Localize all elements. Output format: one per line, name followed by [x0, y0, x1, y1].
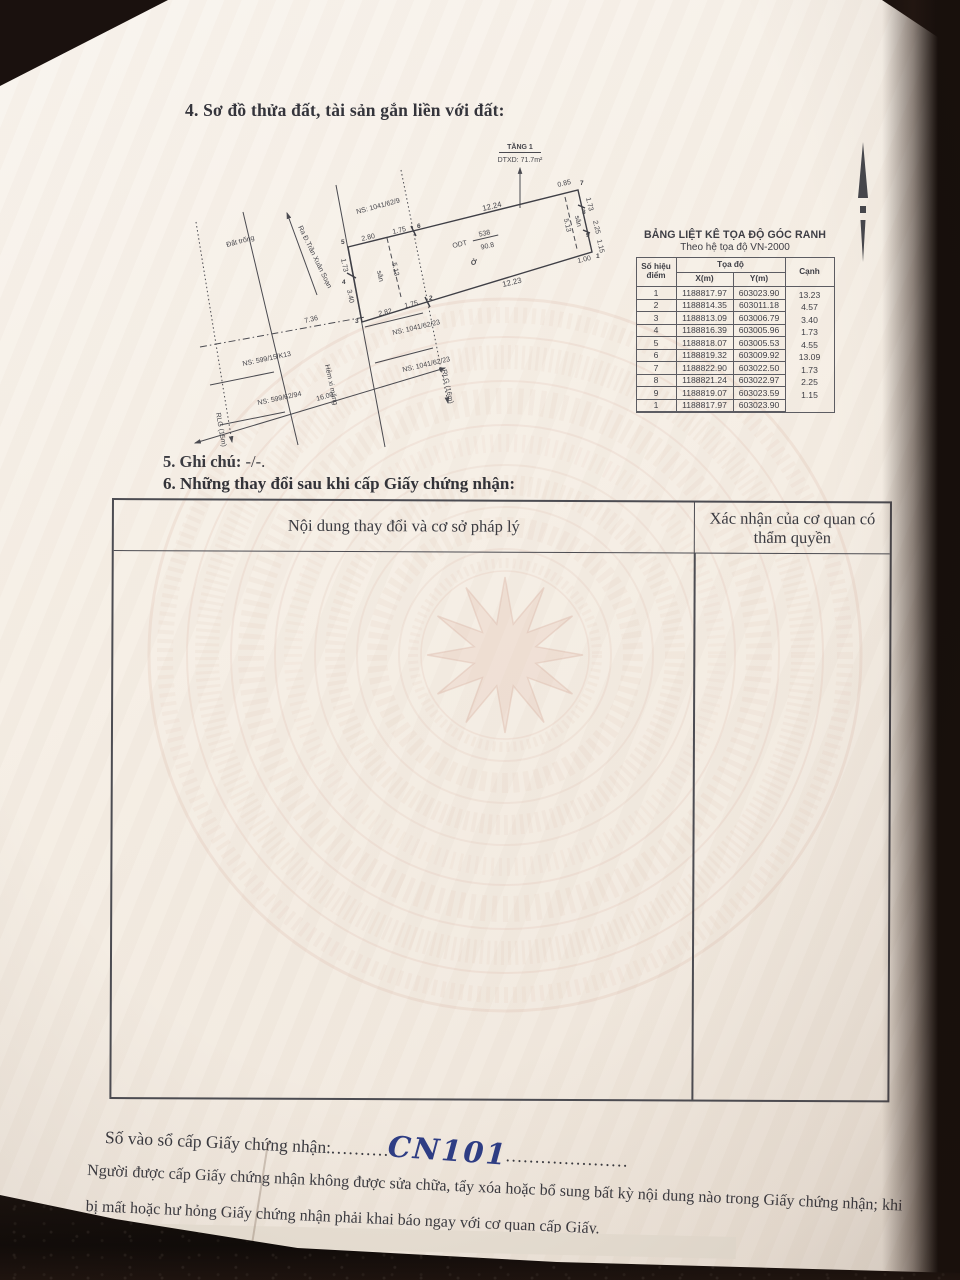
coord-cell: 1 — [637, 287, 677, 300]
photo-background-right — [882, 0, 960, 1280]
coord-cell: 6 — [637, 350, 677, 363]
coord-cell: 1188816.39 — [677, 325, 734, 338]
point-number: 8 — [582, 209, 586, 216]
section4-title: 4. Sơ đồ thửa đất, tài sản gắn liền với … — [185, 100, 505, 121]
edge-length-value: 4.57 — [787, 302, 833, 312]
vacant-land-boundary — [243, 212, 298, 445]
point-number: 2 — [429, 295, 433, 302]
coord-cell: 1188813.09 — [677, 312, 734, 325]
cadastral-sketch: TẦNG 1 DTXD: 71.7m² Đất trống Ra Đ.Trần … — [165, 135, 705, 465]
edge-length-value: 13.09 — [787, 352, 833, 362]
coord-cell: 7 — [637, 362, 677, 375]
coord-cell: 603022.50 — [734, 362, 786, 375]
col-header-coord: Tọa độ — [677, 258, 786, 273]
land-use-label: Ở — [470, 257, 479, 267]
rlg15-label: RLG (15m) — [214, 412, 227, 447]
edge-length-value: 3.40 — [787, 315, 833, 325]
coord-cell: 1188818.07 — [677, 337, 734, 350]
floor-area-label: DTXD: 71.7m² — [498, 157, 543, 164]
edge-length-value: 4.55 — [787, 340, 833, 350]
coord-cell: 603023.90 — [734, 287, 786, 300]
coord-table-subtitle: Theo hệ tọa độ VN-2000 — [628, 242, 842, 253]
coord-cell: 603005.53 — [734, 337, 786, 350]
coord-cell: 5 — [637, 337, 677, 350]
north-arrow-icon — [846, 136, 880, 264]
edge-length-column: 13.234.573.401.734.5513.091.732.251.15 — [787, 287, 833, 412]
coord-table: Số hiệu điểm Tọa độ Cạnh X(m) Y(m) 11188… — [636, 257, 835, 413]
section5-value: -/-. — [246, 452, 266, 471]
changes-col2-header: Xác nhận của cơ quan có thẩm quyền — [695, 503, 890, 554]
plot-outline — [348, 190, 592, 322]
changes-table-divider — [691, 554, 695, 1100]
courtyard-label: sân — [573, 215, 582, 228]
section6-title: 6. Những thay đổi sau khi cấp Giấy chứng… — [163, 474, 515, 494]
rlg16-label: RLG (16m) — [440, 369, 454, 404]
section5-label: 5. Ghi chú: — [163, 452, 241, 471]
courtyard-label: sân — [375, 270, 384, 283]
neighbor-parcel-label: NS: 1041/62/23 — [392, 319, 441, 337]
coord-cell: 603022.97 — [734, 375, 786, 388]
coord-cell: 2 — [637, 300, 677, 313]
street-label: Ra Đ.Trần Xuân Soạn — [296, 224, 334, 290]
point-number: 7 — [580, 180, 584, 187]
point-number: 9 — [586, 232, 590, 239]
dim-label: 1.15 — [595, 239, 605, 254]
coord-table-title: BẢNG LIỆT KÊ TỌA ĐỘ GÓC RANH — [628, 229, 842, 241]
coord-cell: 1188817.97 — [677, 400, 734, 413]
dim-label: 5.13 — [562, 218, 572, 233]
dim-label: 0.85 — [557, 179, 572, 189]
changes-table-header: Nội dung thay đổi và cơ sở pháp lý Xác n… — [114, 500, 890, 554]
neighbor-parcel-label: NS: 599/15/K13 — [242, 351, 292, 368]
coord-cell: 9 — [637, 387, 677, 400]
coord-cell: 603011.18 — [734, 300, 786, 313]
edge-length-value: 2.25 — [787, 377, 833, 387]
edge-length-value: 13.23 — [787, 290, 833, 300]
point-number: 1 — [596, 253, 600, 260]
col-header-edge: Cạnh — [786, 258, 834, 287]
coord-cell: 1 — [637, 400, 677, 413]
coord-cell: 1188822.90 — [677, 362, 734, 375]
neighbor-parcel-label: NS: 1041/62/9 — [356, 198, 401, 216]
point-number: 5 — [341, 239, 345, 246]
point-number: 6 — [417, 223, 421, 230]
dotted-leader: ..................... — [505, 1145, 629, 1171]
edge-length-value: 1.73 — [787, 327, 833, 337]
parcel-id-group: ODT 538 90.8 Ở — [451, 228, 504, 271]
dim-label: 12.23 — [501, 276, 522, 289]
coord-cell: 603009.92 — [734, 350, 786, 363]
edge-length-value: 1.15 — [787, 390, 833, 400]
coord-cell: 1188814.35 — [677, 300, 734, 313]
changes-table: Nội dung thay đổi và cơ sở pháp lý Xác n… — [109, 498, 892, 1102]
edge-length-value: 1.73 — [787, 365, 833, 375]
coord-cell: 1188819.07 — [677, 387, 734, 400]
dim-label: 1.73 — [339, 258, 349, 273]
changes-col1-header: Nội dung thay đổi và cơ sở pháp lý — [114, 500, 695, 553]
dim-label: 3.40 — [345, 289, 355, 304]
coordinate-table-block: BẢNG LIỆT KÊ TỌA ĐỘ GÓC RANH Theo hệ tọa… — [628, 229, 842, 413]
floor-label: TẦNG 1 — [507, 141, 533, 151]
coord-cell: 603006.79 — [734, 312, 786, 325]
point-number: 4 — [342, 279, 346, 286]
dim-label: 2.25 — [591, 220, 601, 235]
coord-cell: 603023.59 — [734, 387, 786, 400]
dim-label: 1.75 — [404, 300, 419, 310]
section5-note: 5. Ghi chú: -/-. — [163, 452, 265, 472]
coord-cell: 1188817.97 — [677, 287, 734, 300]
dim-label: 2.82 — [378, 308, 393, 318]
dim-label: 5.13 — [390, 262, 400, 277]
dim-label: 1.75 — [392, 226, 407, 236]
coord-cell: 603023.90 — [734, 400, 786, 413]
coord-cell: 3 — [637, 312, 677, 325]
point-number: 3 — [355, 318, 359, 325]
coord-cell: 8 — [637, 375, 677, 388]
rlg15-dotted-line — [196, 222, 232, 442]
col-header-y: Y(m) — [734, 273, 786, 287]
plot-area: 90.8 — [480, 242, 495, 252]
coord-cell: 1188819.32 — [677, 350, 734, 363]
coord-cell: 1188821.24 — [677, 375, 734, 388]
col-header-point: Số hiệu điểm — [637, 258, 677, 287]
col-header-x: X(m) — [677, 273, 734, 287]
neighbor-parcel-label: NS: 599/62/94 — [257, 391, 302, 407]
land-type-label: ODT — [452, 240, 469, 250]
frontage-dimension-line — [195, 368, 445, 443]
dotted-leader: .......... — [331, 1137, 391, 1160]
dim-label: 7.36 — [304, 315, 319, 325]
dim-label: 2.80 — [361, 233, 376, 243]
photographed-certificate-page: 4. Sơ đồ thửa đất, tài sản gắn liền với … — [0, 0, 960, 1280]
coord-cell: 4 — [637, 325, 677, 338]
coord-cell: 603005.96 — [734, 325, 786, 338]
changes-table-body — [111, 551, 889, 1100]
